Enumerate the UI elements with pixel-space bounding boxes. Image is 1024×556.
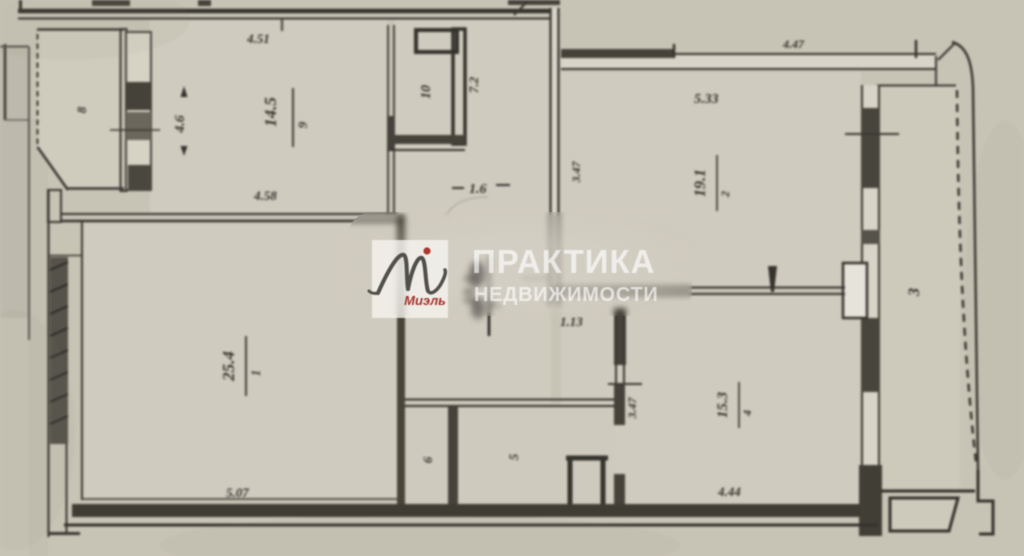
svg-text:ПРАКТИКА: ПРАКТИКА xyxy=(472,243,655,280)
svg-text:НЕДВИЖИМОСТИ: НЕДВИЖИМОСТИ xyxy=(474,284,658,306)
svg-text:Миэль: Миэль xyxy=(404,293,446,308)
